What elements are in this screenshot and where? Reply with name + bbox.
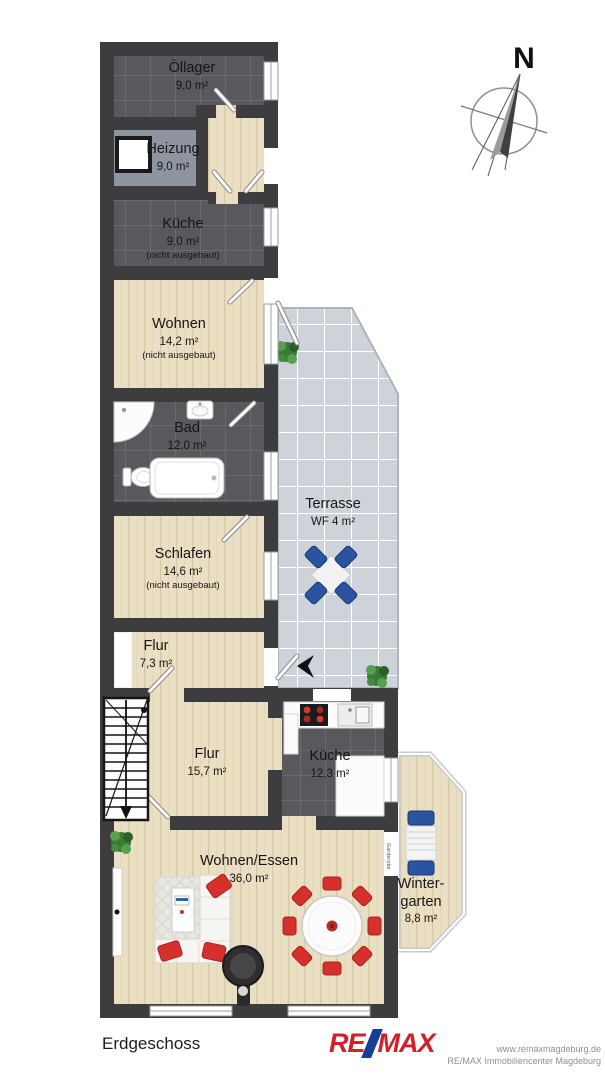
window (264, 452, 278, 500)
window (384, 758, 398, 802)
floor-kueche-dg (114, 200, 264, 266)
niche (114, 632, 132, 688)
chair-icon (408, 861, 434, 875)
wintergarten-area (398, 754, 464, 950)
stove-icon (300, 704, 328, 726)
floorplan-page: N Öllager9,0 m² Heizung9,0 m² Küche9,0 m… (0, 0, 605, 1080)
floor-schlafen (114, 516, 264, 618)
window (264, 62, 278, 100)
window (264, 304, 278, 364)
remax-logo-max: MAX (378, 1028, 435, 1059)
floor-flur-klein (114, 632, 264, 688)
watermark: www.remaxmagdeburg.de RE/MAX Immobilienc… (447, 1043, 601, 1067)
coffee-table-icon (172, 888, 194, 932)
compass-north-label: N (513, 42, 535, 75)
plant-icon (366, 665, 389, 688)
window (288, 1006, 370, 1016)
wintergarten-table-icon (406, 811, 436, 875)
kitchen-sink-icon (338, 704, 372, 726)
room-label-garderobe: Garderobe (380, 835, 391, 877)
heizung-boiler-icon (117, 138, 150, 171)
sink-icon (187, 401, 213, 419)
window (264, 552, 278, 600)
floor-title: Erdgeschoss (102, 1034, 200, 1054)
window (150, 1006, 232, 1016)
compass-icon: N (461, 42, 547, 176)
terrace-area (276, 308, 398, 688)
company-name: RE/MAX Immobiliencenter Magdeburg (447, 1055, 601, 1067)
floor-wohnen (114, 280, 264, 388)
website-url: www.remaxmagdeburg.de (447, 1043, 601, 1055)
window (264, 208, 278, 246)
bathtub-icon (150, 458, 224, 498)
stairs (104, 698, 148, 820)
remax-logo-re: RE (329, 1028, 365, 1059)
plant-icon (110, 831, 133, 854)
kitchen-counter (284, 714, 298, 754)
remax-logo: RE MAX (329, 1028, 435, 1059)
tv-sideboard-icon (113, 868, 122, 956)
chair-icon (408, 811, 434, 825)
kitchen-counter (336, 756, 384, 816)
floorplan-drawing: N (0, 0, 605, 1080)
